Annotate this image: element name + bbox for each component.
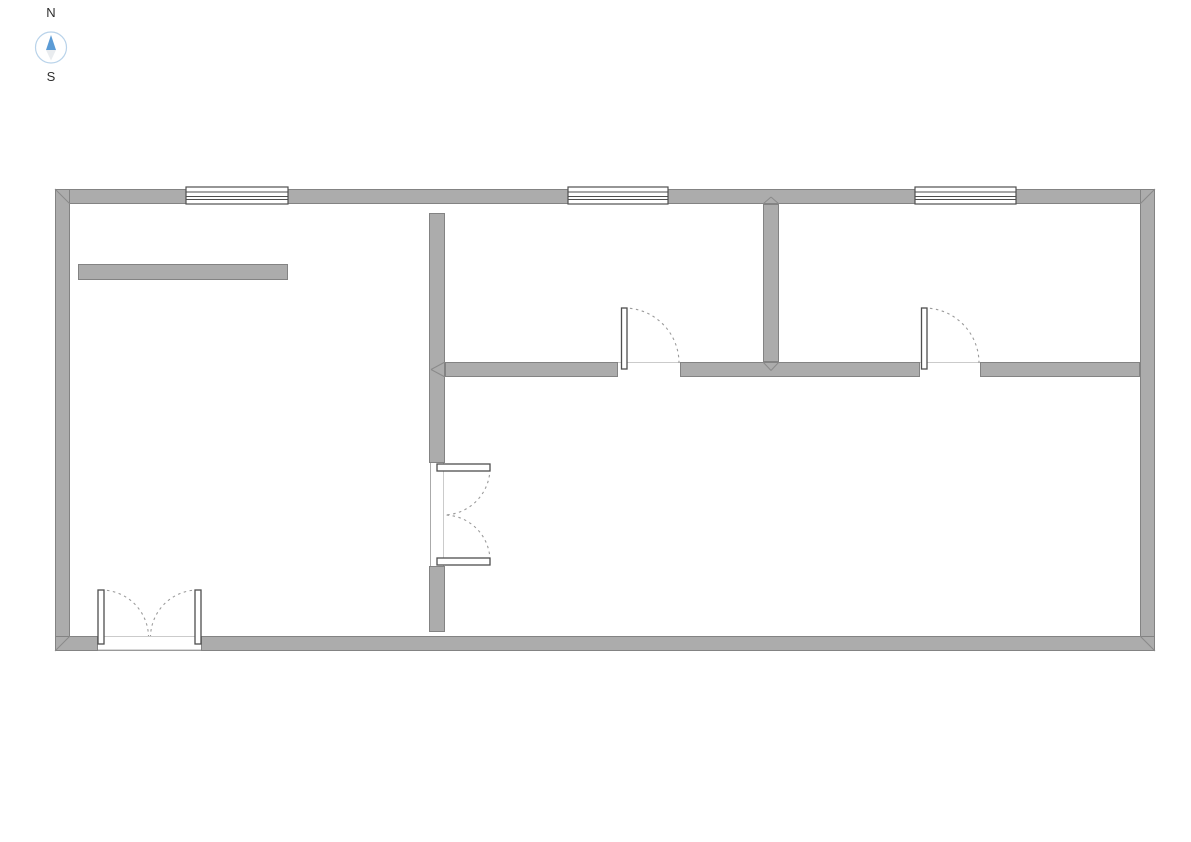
double-door-entry-leaf (98, 590, 104, 644)
double-door-entry-swing-arc (151, 590, 199, 636)
freestanding-wall-bar (79, 265, 288, 280)
double-door-partition-swing-arc (444, 469, 490, 515)
double-door-partition-swing-arc (444, 515, 490, 560)
floor-plan-page: N S (0, 0, 1191, 842)
outer-wall-bottom-east (202, 637, 1155, 651)
door-room-east-leaf (922, 308, 928, 369)
double-door-entry-swing-arc (101, 590, 149, 636)
window-top-left (186, 187, 288, 204)
window-top-middle (568, 187, 668, 204)
outer-wall-left (56, 190, 70, 651)
partition-horizontal-east (981, 363, 1140, 377)
door-room-west-leaf (622, 308, 628, 369)
window-top-right (915, 187, 1016, 204)
partition-vertical-topright (764, 205, 779, 362)
double-door-entry-leaf (195, 590, 201, 644)
double-door-partition-leaf (437, 464, 490, 471)
door-room-east-swing-arc (924, 308, 979, 363)
outer-wall-right (1141, 190, 1155, 651)
floor-plan-drawing (0, 0, 1191, 842)
partition-vertical-upper (430, 214, 445, 463)
partition-vertical-lower (430, 567, 445, 632)
partition-horizontal-west (446, 363, 618, 377)
partition-horizontal-middle (681, 363, 920, 377)
door-room-west-swing-arc (624, 308, 679, 363)
double-door-partition-leaf (437, 558, 490, 565)
